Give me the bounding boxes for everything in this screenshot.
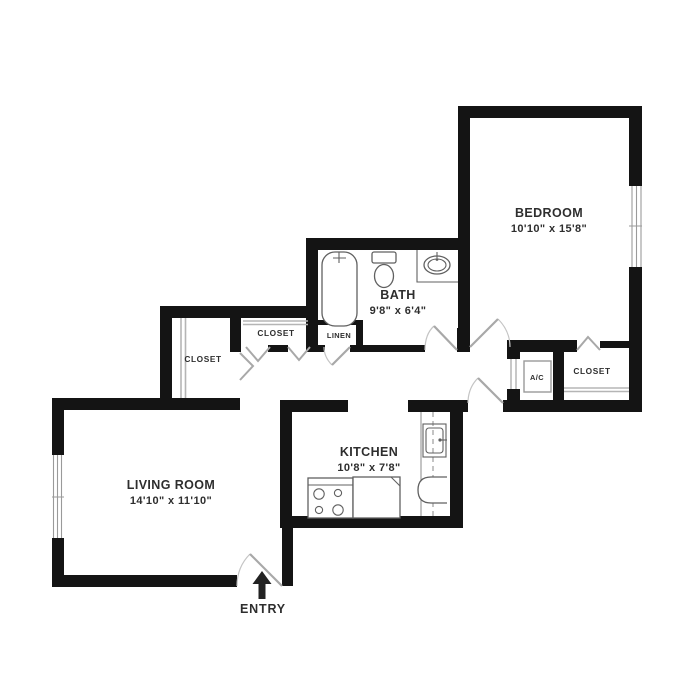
hall-closet-label: CLOSET [257,328,294,338]
linen-door [324,347,350,365]
entry-arrow-icon [253,571,272,599]
bedroom-closet-bifold-door [577,337,600,350]
linen-label: LINEN [327,331,351,340]
floor-plan-drawing: BEDROOM 10'10" x 15'8" BATH 9'8" x 6'4" … [0,0,697,697]
kitchen-counter [353,477,400,518]
hall-door [468,378,503,403]
stove [308,478,353,518]
left-closet-bifold-door [240,353,253,380]
bathtub [322,252,357,326]
bath-sink [417,250,458,282]
ac-label: A/C [530,373,544,382]
hall-closet-shelf [243,321,308,325]
living-room-window [52,455,64,538]
living-room-label: LIVING ROOM [127,478,215,492]
bedroom-label: BEDROOM [515,206,583,220]
hall-closet-bifold-door-1 [246,347,270,361]
bedroom-closet-label: CLOSET [573,366,610,376]
bedroom-dims: 10'10" x 15'8" [511,223,587,235]
bedroom-door [470,319,510,347]
floor-plan: BEDROOM 10'10" x 15'8" BATH 9'8" x 6'4" … [0,0,697,697]
living-room-dims: 14'10" x 11'10" [130,495,212,507]
kitchen-label: KITCHEN [340,445,398,459]
kitchen-appliance [418,477,447,503]
bedroom-closet-shelf [564,388,629,392]
bath-door [425,326,457,350]
toilet [372,252,396,288]
ac-closet-door [511,359,516,389]
kitchen-sink [423,424,447,457]
kitchen-dims: 10'8" x 7'8" [337,462,400,474]
entry-label: ENTRY [240,602,286,616]
bath-dims: 9'8" x 6'4" [370,305,427,317]
bath-label: BATH [380,288,415,302]
bedroom-window [629,186,642,267]
left-closet-label: CLOSET [184,354,221,364]
